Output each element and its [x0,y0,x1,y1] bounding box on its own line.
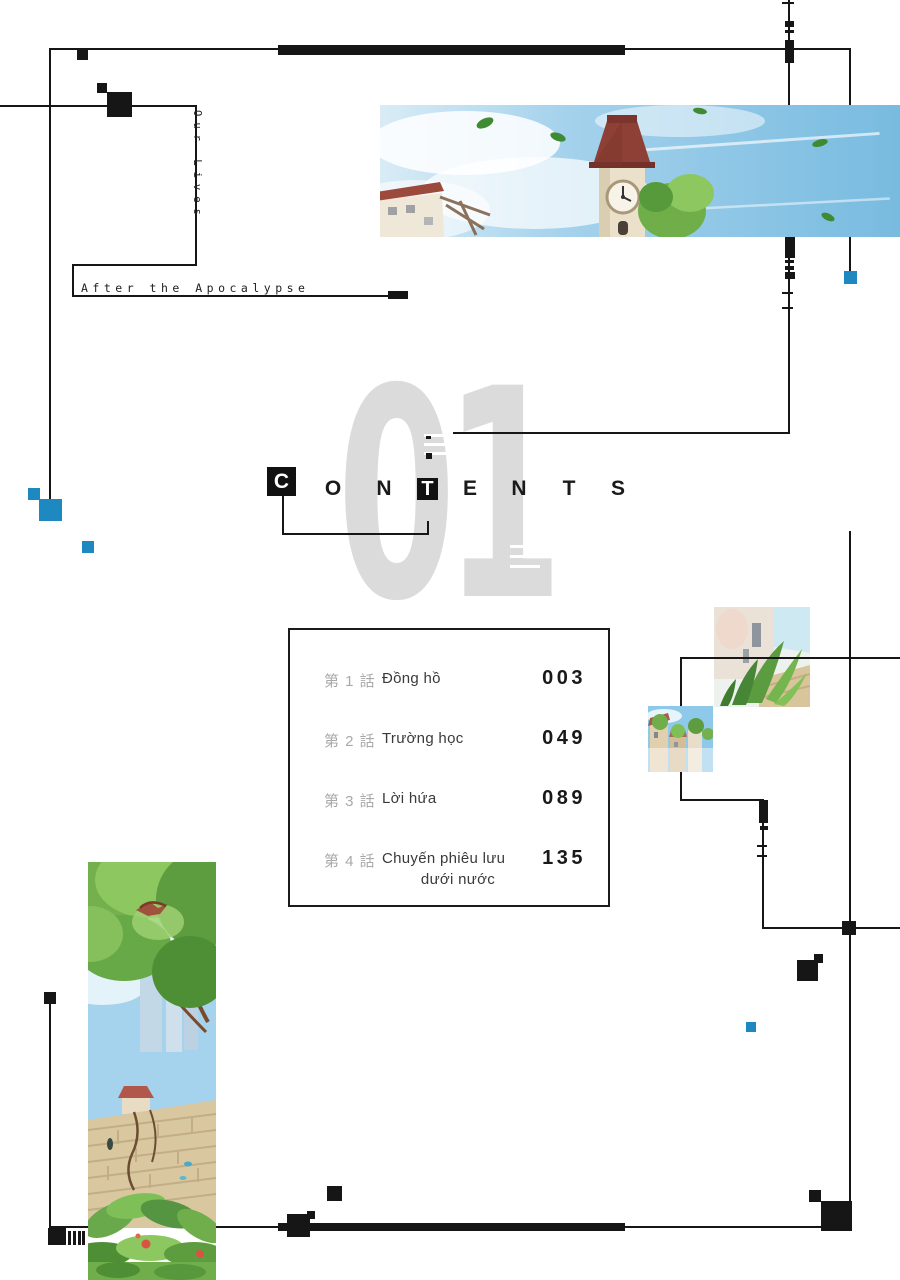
ruler-tick [760,826,768,830]
top-rail-thick-segment [278,45,625,55]
contents-letter: E [455,477,485,501]
blue-square-top-right [844,271,857,284]
ruler-tick [782,292,793,294]
subtitle-underline [72,295,389,297]
numeral-connector-line [453,432,790,434]
chapter-label: 第 1 話 [324,670,376,691]
chapter-row: 第 2 話 Trường học 049 [290,730,608,752]
chapter-title: Lời hứa [382,790,534,807]
barcode-block [48,1228,66,1245]
thumbnail-image-town [648,706,713,772]
ruler-bar [785,40,794,63]
decor-square [809,1190,821,1202]
chapter-title: Chuyến phiêu lưudưới nước [382,850,534,888]
manga-contents-page: { "page": { "volume_number": "01" }, "he… [0,0,900,1280]
barcode-bar [73,1231,76,1245]
banner-image-clocktower [380,105,900,237]
ruler-tick [757,845,767,847]
contents-letter: T [554,477,584,501]
ruler-tick [782,2,794,4]
chapter-title-line2: dưới nước [382,871,534,888]
contents-letter: N [369,477,399,501]
series-title-vertical: Our Lives [191,110,203,240]
chapter-title: Đồng hồ [382,670,534,687]
numeral-slit [510,565,540,568]
left-frame-bottom [73,264,197,266]
ruler-bar [759,800,768,823]
decor-square [797,960,818,981]
frame-square-small [97,83,107,93]
contents-connector [282,533,429,535]
contents-letter-boxed: T [417,478,438,500]
left-frame-top [0,105,197,107]
ruler-tick [782,307,793,309]
chapter-row: 第 1 話 Đồng hồ 003 [290,670,608,692]
top-rail-square [77,49,88,60]
blue-square-left-lower [82,541,94,553]
chapter-page: 049 [542,727,586,750]
contents-letter: N [504,477,534,501]
contents-box: 第 1 話 Đồng hồ 003 第 2 話 Trường học 049 第… [288,628,610,907]
chapter-label: 第 4 話 [324,850,376,871]
contents-connector [282,496,284,535]
thumb-rail-step [680,799,764,801]
bottom-left-drop [49,997,51,1228]
contents-letter: O [318,477,348,501]
ruler-tick [785,266,794,270]
bottom-rail-thick-segment [278,1223,625,1231]
barcode-bar [68,1231,71,1245]
left-frame-drop [49,48,51,501]
contents-tick [426,453,432,459]
contents-letter-boxed: C [267,467,296,496]
barcode-bar [78,1231,81,1245]
barcode-bar [82,1231,85,1245]
ruler-tick [785,260,794,263]
left-frame-step [72,264,74,297]
blue-square-right-lower [746,1022,756,1032]
chapter-page: 003 [542,667,586,690]
numeral-slit [510,555,540,558]
right-long-vertical [849,531,851,1203]
decor-square [327,1186,342,1201]
bottom-right-anchor-square [821,1201,852,1231]
contents-connector [427,521,429,535]
right-exit-line [763,927,900,929]
ruler-tick [785,21,794,27]
decor-square [307,1211,315,1219]
left-tall-image-tree-wall [88,862,216,1280]
ruler-tick [757,855,767,857]
ruler-tick [785,30,794,33]
contents-tick [426,436,431,439]
ruler-bar [785,272,795,279]
blue-square-left-large [39,499,62,521]
subtitle-end-bar [388,291,408,299]
chapter-page: 135 [542,847,586,870]
chapter-row: 第 4 話 Chuyến phiêu lưudưới nước 135 [290,850,608,872]
numeral-slit [424,443,460,446]
frame-square-large [107,92,132,117]
thumb-rail-line [681,657,900,659]
chapter-label: 第 3 話 [324,790,376,811]
chapter-title-line1: Chuyến phiêu lưu [382,850,505,867]
series-subtitle: After the Apocalypse [81,281,309,295]
chapter-title: Trường học [382,730,534,747]
numeral-slit [510,545,540,548]
decor-square [44,992,56,1004]
chapter-row: 第 3 話 Lời hứa 089 [290,790,608,812]
contents-letter: S [603,477,633,501]
chapter-label: 第 2 話 [324,730,376,751]
chapter-page: 089 [542,787,586,810]
ruler-bar [785,237,795,258]
